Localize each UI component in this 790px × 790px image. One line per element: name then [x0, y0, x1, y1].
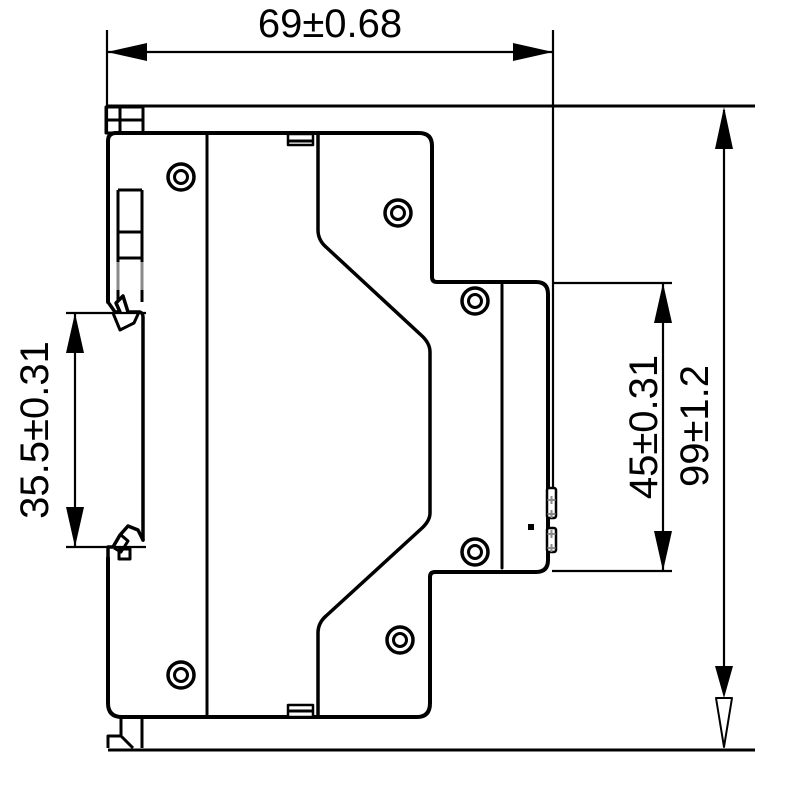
dim-rail-label: 35.5±0.31: [13, 341, 57, 519]
din-device-side-view-drawing: 69±0.68 35.5±0.31 45±0.31 99±1.2: [0, 0, 790, 790]
mounting-tab-bottom: [288, 705, 313, 717]
technical-drawing-canvas: 69±0.68 35.5±0.31 45±0.31 99±1.2: [0, 0, 790, 790]
dim-height-label: 99±1.2: [673, 365, 717, 487]
index-mark: [528, 524, 534, 530]
dim-width-label: 69±0.68: [258, 2, 402, 46]
mounting-tab-top: [288, 134, 313, 145]
dim-front-label: 45±0.31: [622, 355, 666, 499]
